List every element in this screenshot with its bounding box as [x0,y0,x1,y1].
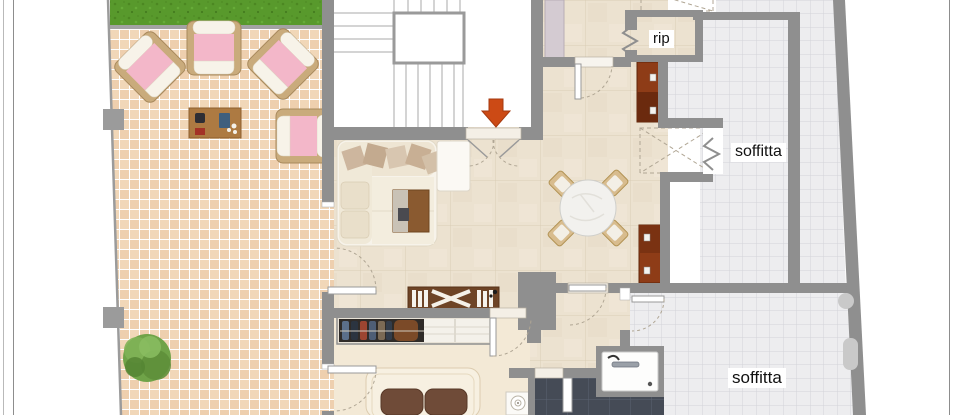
attic-door-leaf [632,296,664,302]
terrace-armchair [276,109,330,163]
terrace-armchair [187,21,241,75]
bed [366,368,480,415]
floor-plan: rip soffitta soffitta [0,0,960,415]
wall-column [843,338,858,370]
entrance-door-sill [466,128,521,139]
hall-counter [545,0,564,58]
terrace-coffee-table [189,108,241,138]
structural-pillar [518,272,556,330]
bedroom-door-leaf [490,318,496,356]
wardrobe [337,317,491,344]
terrace-post [103,109,124,130]
label-attic-upper: soffitta [731,143,786,162]
side-unit [437,141,470,191]
terrace [103,0,334,415]
floor-spotlight [506,392,530,415]
stairwell-void [394,13,464,63]
console-table [408,287,499,310]
label-attic-lower: soffitta [728,368,786,388]
hallway-door-leaf [569,285,606,291]
living-coffee-table [393,190,429,232]
wall-column [838,293,854,309]
shower [596,346,664,397]
terrace-door-leaf [328,287,376,294]
bathroom-door-leaf [563,378,572,412]
terrace-post [103,307,124,328]
red-cabinet-east [639,225,661,283]
bedroom-terrace-door-leaf [328,366,376,373]
terrace-tree [123,334,171,382]
dining-table [560,180,616,236]
red-cabinet-north [637,62,659,122]
floor-plan-drawing [0,0,960,415]
label-storage-room: rip [649,30,674,48]
hall-door-leaf [575,64,581,99]
